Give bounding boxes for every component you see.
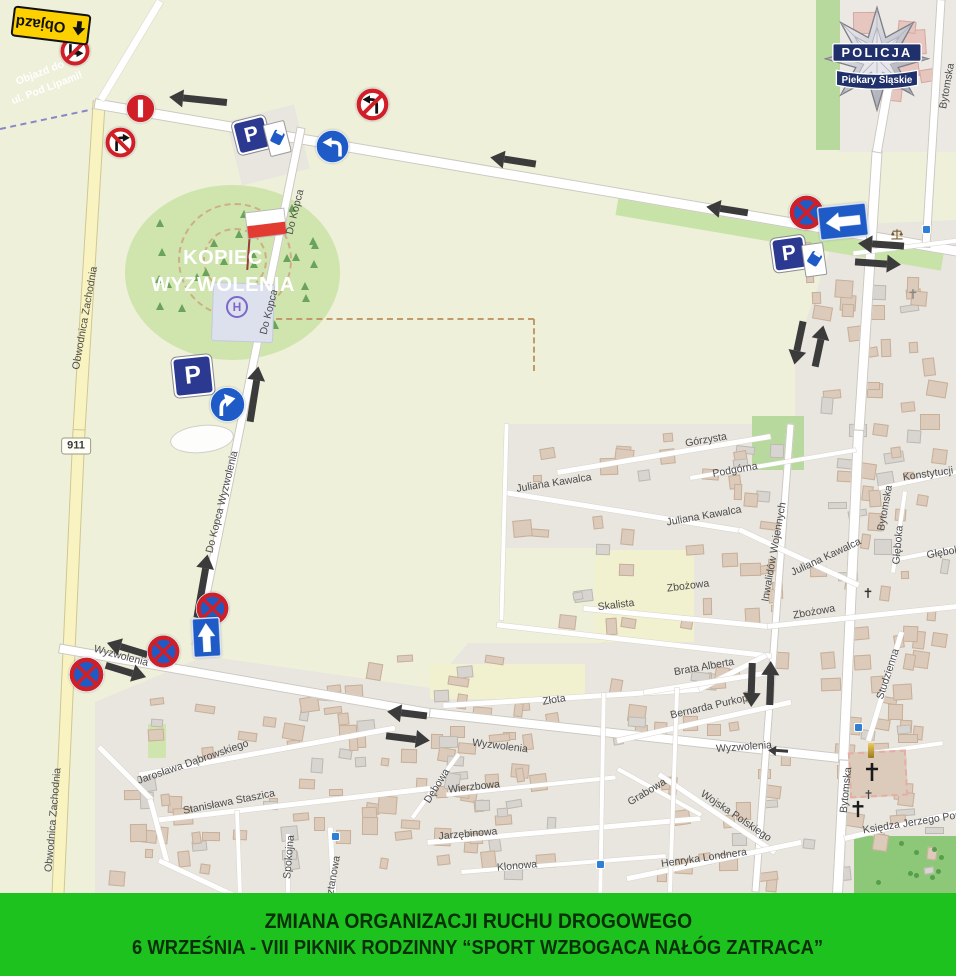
detour-label: Objazd xyxy=(15,13,67,36)
building xyxy=(263,716,277,728)
building xyxy=(522,733,534,750)
building xyxy=(605,618,617,636)
building xyxy=(366,662,384,681)
tree-icon xyxy=(301,282,309,290)
traffic-flow-arrow xyxy=(743,663,761,708)
arrow-head xyxy=(886,255,901,274)
building xyxy=(820,652,835,671)
building xyxy=(906,430,921,444)
building xyxy=(108,870,126,887)
road-segment xyxy=(286,834,290,893)
church-cross-icon xyxy=(848,799,868,819)
road-number-badge: 911 xyxy=(61,438,91,455)
building xyxy=(931,632,948,648)
building xyxy=(868,489,882,507)
building xyxy=(871,833,888,852)
tree-icon xyxy=(235,230,243,238)
building xyxy=(821,677,842,691)
arrow-shaft xyxy=(794,321,807,352)
no-right-turn-sign xyxy=(104,126,137,159)
building xyxy=(803,839,816,850)
church-cross-icon xyxy=(863,787,874,798)
arrow-shaft xyxy=(504,156,537,168)
police-subtitle: Piekary Śląskie xyxy=(842,74,913,86)
building xyxy=(891,446,903,458)
building xyxy=(874,539,892,556)
arrow-shaft xyxy=(766,675,774,705)
building xyxy=(311,757,324,773)
building xyxy=(892,683,912,700)
polish-flag-icon xyxy=(245,208,288,240)
building xyxy=(379,857,389,870)
building xyxy=(129,824,146,842)
building xyxy=(925,827,944,834)
arrow-head xyxy=(705,198,722,218)
building xyxy=(685,544,703,555)
building xyxy=(620,529,634,546)
traffic-flow-arrow xyxy=(857,235,904,254)
traffic-flow-arrow xyxy=(168,89,227,111)
tree-icon xyxy=(302,294,310,302)
arrow-head xyxy=(196,553,216,570)
building xyxy=(512,519,533,538)
arrow-shaft xyxy=(811,338,824,367)
path-dashed-line xyxy=(256,318,534,320)
arrow-head xyxy=(247,365,267,382)
street-label: ul. Pod Lipami! xyxy=(10,69,85,107)
tree-icon xyxy=(156,302,164,310)
building xyxy=(202,832,220,841)
one-way-up-sign xyxy=(190,616,221,658)
police-title: POLICJA xyxy=(842,45,913,60)
arrow-head xyxy=(386,703,402,723)
arrow-shaft xyxy=(183,95,227,107)
building xyxy=(177,851,190,868)
traffic-flow-arrow xyxy=(854,253,901,272)
road-segment xyxy=(97,0,162,101)
building xyxy=(728,721,739,731)
church-cross-icon xyxy=(861,761,883,783)
building xyxy=(662,433,673,442)
kopiec-wyzwolenia-label: KOPIEC WYZWOLENIA xyxy=(151,245,295,299)
building xyxy=(458,743,477,756)
building xyxy=(916,494,929,507)
building xyxy=(620,617,636,629)
building xyxy=(900,402,915,413)
building xyxy=(637,469,651,482)
arrow-head xyxy=(786,349,807,366)
tree-icon xyxy=(178,304,186,312)
building xyxy=(898,734,918,743)
arrow-shaft xyxy=(119,644,148,659)
parking-meter-sign: P xyxy=(770,231,834,287)
building xyxy=(842,304,854,318)
building xyxy=(148,729,165,742)
building xyxy=(480,850,497,868)
building xyxy=(380,758,389,767)
road-segment xyxy=(72,100,105,434)
arrow-head xyxy=(812,324,833,341)
building xyxy=(743,492,758,507)
building xyxy=(736,802,751,820)
building xyxy=(362,817,378,835)
arrow-head xyxy=(768,745,777,756)
building xyxy=(879,586,891,602)
traffic-flow-arrow xyxy=(761,661,779,706)
banner-line1: ZMIANA ORGANIZACJI RUCHU DROGOWEGO xyxy=(264,910,692,934)
building xyxy=(770,444,785,458)
building xyxy=(439,736,458,748)
traffic-flow-arrow xyxy=(386,704,428,725)
building xyxy=(896,724,911,734)
arrow-shaft xyxy=(720,205,749,216)
arrow-shaft xyxy=(401,710,428,720)
path-dashed-line xyxy=(533,319,535,371)
building xyxy=(337,712,350,726)
police-badge: POLICJA Piekary Śląskie xyxy=(824,4,930,124)
building xyxy=(377,796,397,815)
banner-line2: 6 WRZEŚNIA - VIII PIKNIK RODZINNY “SPORT… xyxy=(132,937,823,960)
building xyxy=(880,339,890,357)
mandatory-left-sign xyxy=(315,129,350,164)
arrow-shaft xyxy=(776,749,788,753)
bus-stop-icon xyxy=(331,832,340,841)
mandatory-right-sign xyxy=(209,386,246,423)
building xyxy=(627,717,645,728)
building xyxy=(434,690,449,702)
arrow-shaft xyxy=(855,258,887,267)
no-left-turn-sign xyxy=(355,87,390,122)
building xyxy=(722,552,738,567)
building xyxy=(397,655,413,663)
parking-disc-plaque xyxy=(801,242,827,278)
building xyxy=(926,379,948,398)
arrow-head xyxy=(104,634,123,655)
building xyxy=(854,655,872,671)
building xyxy=(931,448,948,465)
tree-icon xyxy=(310,260,318,268)
building xyxy=(485,773,500,787)
building xyxy=(922,357,936,376)
tree-icon xyxy=(930,875,935,880)
building xyxy=(497,808,509,818)
building xyxy=(707,724,721,736)
building xyxy=(888,704,904,720)
building xyxy=(533,475,542,482)
title-banner: ZMIANA ORGANIZACJI RUCHU DROGOWEGO 6 WRZ… xyxy=(0,893,956,976)
no-stopping-sign xyxy=(68,656,105,693)
amphitheatre-building xyxy=(169,422,236,457)
building xyxy=(150,697,165,706)
detour-arrow-icon xyxy=(69,20,87,38)
building xyxy=(909,341,918,353)
building xyxy=(436,854,450,865)
helipad-icon: H xyxy=(226,296,248,318)
arrow-head xyxy=(168,88,184,107)
building xyxy=(820,397,833,415)
kopiec-line2: WYZWOLENIA xyxy=(151,272,295,299)
building xyxy=(400,819,420,829)
building xyxy=(355,757,367,768)
park-green xyxy=(854,836,956,893)
arrow-head xyxy=(761,661,779,676)
building xyxy=(924,866,935,875)
building xyxy=(812,304,833,321)
map-canvas: HObjazd doul. Pod Lipami!Obwodnica Zacho… xyxy=(0,0,956,893)
bus-stop-icon xyxy=(596,860,605,869)
building xyxy=(920,414,940,430)
building xyxy=(199,863,210,874)
traffic-flow-arrow xyxy=(767,742,788,759)
no-stopping-sign xyxy=(146,634,181,669)
church-cross-icon xyxy=(907,287,919,299)
bus-stop-icon xyxy=(854,723,863,732)
church-cross-icon xyxy=(862,586,874,598)
building xyxy=(314,817,325,831)
no-entry-bar-sign xyxy=(125,93,156,124)
tree-icon xyxy=(156,219,164,227)
building xyxy=(873,423,890,437)
building xyxy=(515,768,526,783)
building xyxy=(151,718,163,727)
building xyxy=(867,512,884,531)
building xyxy=(592,516,604,531)
building xyxy=(299,778,316,789)
bus-stop-icon xyxy=(922,225,931,234)
building xyxy=(145,849,153,859)
building xyxy=(812,292,821,304)
building xyxy=(902,625,918,641)
building xyxy=(400,749,416,764)
arrow-head xyxy=(489,149,506,169)
building xyxy=(834,280,853,299)
arrow-head xyxy=(415,730,431,750)
arrow-head xyxy=(742,693,760,708)
building xyxy=(827,502,846,509)
arrow-shaft xyxy=(105,662,134,677)
building xyxy=(444,772,462,791)
boundary-dashed-line xyxy=(0,107,98,130)
building xyxy=(475,799,491,811)
kopiec-line1: KOPIEC xyxy=(151,245,295,272)
arrow-shaft xyxy=(872,241,904,250)
building xyxy=(734,484,743,500)
parking-disc-plaque xyxy=(263,120,292,157)
monument-icon xyxy=(868,743,874,758)
building xyxy=(900,571,908,579)
building xyxy=(558,614,577,630)
building xyxy=(619,564,635,577)
arrow-shaft xyxy=(386,732,417,743)
building xyxy=(703,598,712,615)
building xyxy=(160,794,170,807)
tree-icon xyxy=(311,241,319,249)
building xyxy=(740,562,761,576)
arrow-shaft xyxy=(748,663,756,693)
building xyxy=(596,544,611,555)
traffic-change-poster: HObjazd doul. Pod Lipami!Obwodnica Zacho… xyxy=(0,0,956,976)
arrow-shaft xyxy=(246,380,259,423)
